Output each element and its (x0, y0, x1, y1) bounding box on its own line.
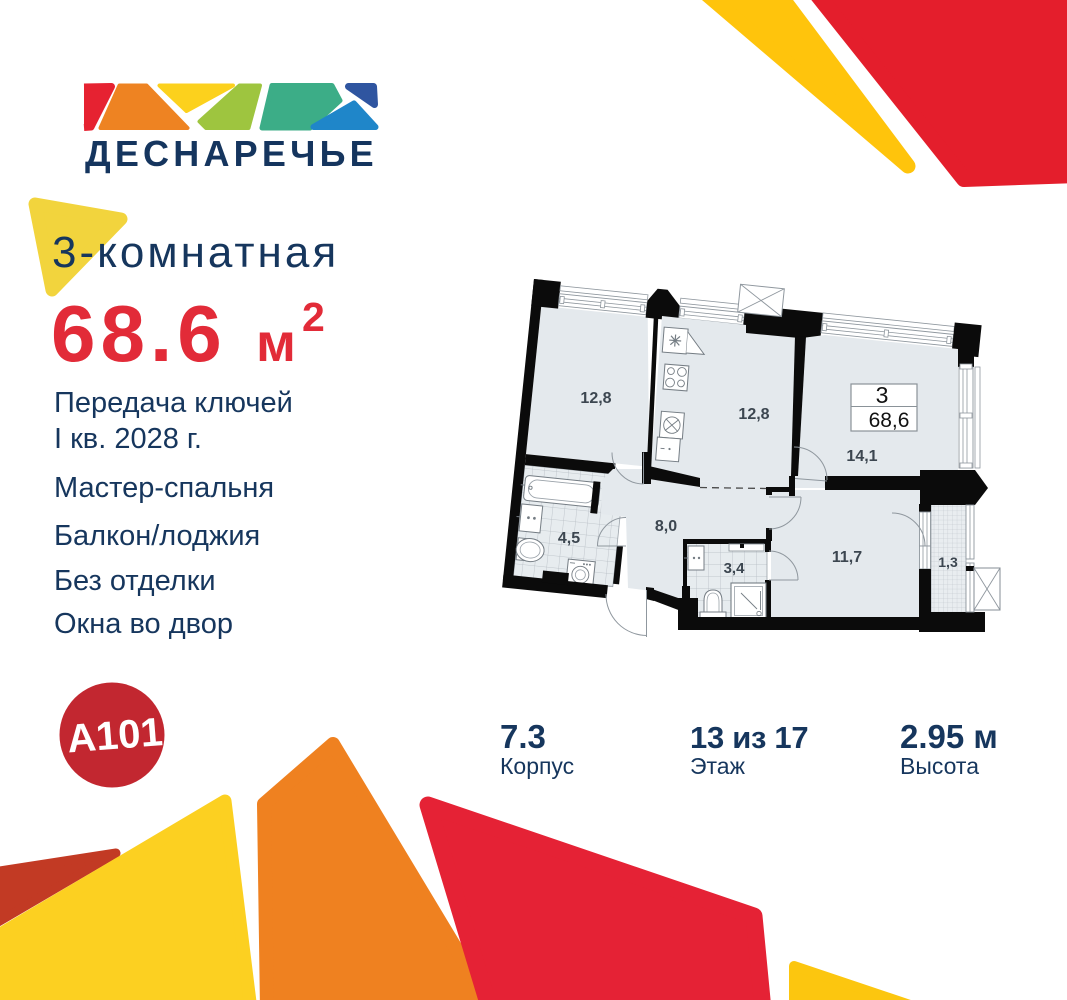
svg-text:2: 2 (302, 294, 325, 340)
svg-text:ДЕСНАРЕЧЬЕ: ДЕСНАРЕЧЬЕ (85, 133, 378, 174)
svg-text:Мастер-спальня: Мастер-спальня (54, 472, 274, 504)
svg-text:3,4: 3,4 (724, 560, 746, 577)
svg-text:Передача ключей: Передача ключей (54, 387, 293, 419)
svg-text:14,1: 14,1 (846, 448, 877, 465)
svg-text:Этаж: Этаж (690, 753, 746, 779)
svg-text:Окна во двор: Окна во двор (54, 608, 233, 640)
svg-text:12,8: 12,8 (738, 406, 769, 423)
svg-text:A101: A101 (65, 710, 164, 761)
svg-text:13 из 17: 13 из 17 (690, 720, 808, 755)
svg-text:Балкон/лоджия: Балкон/лоджия (54, 520, 260, 552)
svg-text:12,8: 12,8 (580, 390, 611, 407)
svg-text:Без отделки: Без отделки (54, 565, 216, 597)
svg-text:Корпус: Корпус (500, 753, 574, 779)
svg-text:7.3: 7.3 (500, 718, 546, 755)
svg-text:68,6: 68,6 (869, 409, 910, 432)
svg-text:11,7: 11,7 (832, 549, 862, 566)
svg-text:2.95 м: 2.95 м (900, 718, 998, 755)
svg-text:м: м (256, 313, 296, 373)
svg-text:3: 3 (876, 382, 889, 408)
svg-text:3-комнатная: 3-комнатная (52, 228, 339, 277)
svg-text:I кв. 2028 г.: I кв. 2028 г. (54, 423, 202, 455)
svg-text:Высота: Высота (900, 753, 979, 779)
svg-text:8,0: 8,0 (655, 518, 677, 535)
svg-text:68.6: 68.6 (51, 289, 227, 378)
svg-text:4,5: 4,5 (558, 530, 580, 547)
svg-text:1,3: 1,3 (938, 554, 958, 570)
